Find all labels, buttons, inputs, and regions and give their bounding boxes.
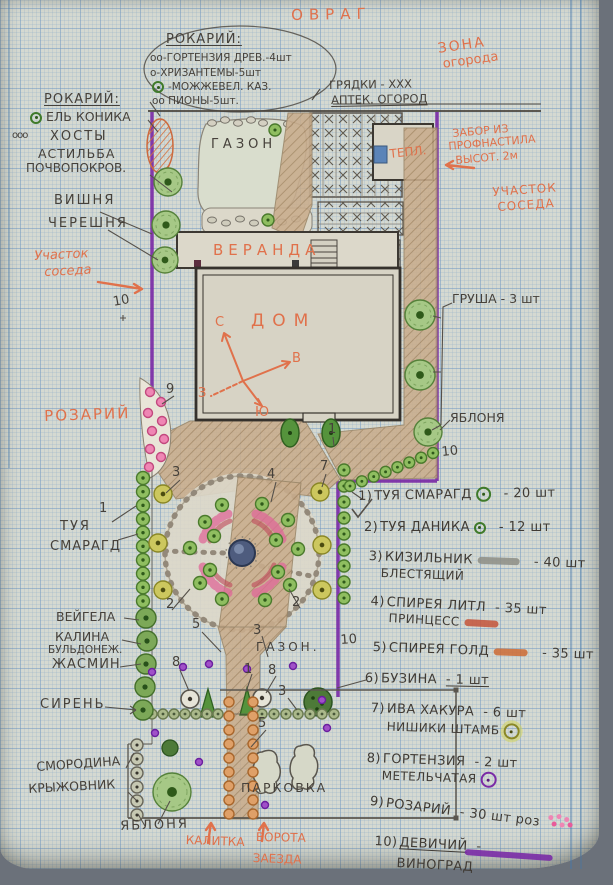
- legend-row-vine-2: ВИНОГРАД: [396, 856, 473, 875]
- num-hydrangea-8b: 8: [268, 664, 276, 678]
- legend-row-willow-2: НИШИКИ ШТАМБ: [386, 719, 523, 740]
- num-spirea-5a: 5: [192, 618, 200, 632]
- rockery-left-title: РОКАРИЙ:: [44, 93, 120, 107]
- label-pear: ГРУША - 3 шт: [452, 292, 540, 305]
- hydrangea-symbol-icon: [480, 771, 497, 788]
- num-spirea-4: 4: [267, 468, 275, 482]
- num-entrance-1: 1: [328, 423, 336, 437]
- rockery-item-peony: оо ПИОНЫ-5шт.: [152, 96, 239, 107]
- thuja-danica-symbol-icon: [474, 522, 486, 534]
- num-hedge-3a: 3: [172, 466, 180, 480]
- label-weigela: ВЕЙГЕЛА: [56, 610, 115, 623]
- spirea-lp-symbol-icon: [464, 619, 498, 628]
- screenshot: ОВРАГ ЗОНА огорода ЗАБОР ИЗ ПРОФНАСТИЛА …: [0, 0, 613, 885]
- willow-symbol-icon: [503, 723, 520, 740]
- label-kalina: КАЛИНА: [55, 630, 109, 643]
- legend-row-spirea-gold: 5)СПИРЕЯ ГОЛД- 35 шт: [372, 640, 594, 663]
- hosta-symbol: ооо: [12, 131, 27, 142]
- label-kalina-2: БУЛЬДОНЕЖ.: [48, 645, 122, 656]
- label-jasmine: ЖАСМИН: [52, 658, 121, 672]
- label-neighbor-left-1: Участок: [34, 247, 89, 263]
- label-thuja-left-2: СМАРАГД: [50, 540, 121, 554]
- label-house: ДОМ: [251, 313, 316, 331]
- label-astilba: АСТИЛЬБА: [38, 147, 115, 160]
- compass-north: С: [215, 316, 224, 330]
- label-greenhouse: ТЕПЛ.: [389, 144, 427, 160]
- label-hostas: ХОСТЫ: [50, 130, 108, 144]
- thuja-smaragd-symbol-icon: [476, 487, 491, 502]
- label-entry: ЗАЕЗДА: [253, 852, 302, 866]
- legend-row-rosary: 9)РОЗАРИЙ- 30 шт роз: [369, 793, 575, 834]
- label-currant: СМОРОДИНА: [36, 754, 121, 773]
- num-gate-1: 1: [244, 663, 252, 677]
- label-neighbor-right-2: СОСЕДА: [497, 197, 555, 214]
- label-lawn-bottom: ГАЗОН.: [256, 641, 320, 654]
- legend-row-thuja-smaragd: 1)ТУЯ СМАРАГД- 20 шт: [358, 486, 556, 504]
- legend-row-thuja-danica: 2)ТУЯ ДАНИКА- 12 шт: [364, 520, 551, 535]
- label-sweet-cherry: ЧЕРЕШНЯ: [48, 217, 128, 231]
- label-apple-right: ЯБЛОНЯ: [450, 411, 505, 424]
- roses-symbol-icon: [547, 815, 574, 830]
- label-spruce: ЕЛЬ КОНИКА: [26, 110, 131, 124]
- spruce-symbol-icon: [30, 112, 42, 124]
- dim-mid-10: 10: [340, 633, 357, 648]
- num-spirea-5b: 5: [258, 717, 266, 731]
- label-ravine: ОВРАГ: [291, 7, 372, 24]
- juniper-symbol-icon: [152, 81, 164, 93]
- legend-row-hydrangea-2: МЕТЕЛЬЧАТАЯ: [381, 768, 500, 788]
- rockery-item-juniper: -МОЖЖЕВЕЛ. КАЗ.: [148, 81, 271, 93]
- rockery-item-hydrangea: оо-ГОРТЕНЗИЯ ДРЕВ.-4шт: [150, 53, 292, 64]
- num-thuja-1: 1: [99, 502, 107, 516]
- label-gooseberry: КРЫЖОВНИК: [28, 777, 116, 795]
- num-hedge-3b: 3: [253, 624, 261, 638]
- label-apothecary-garden: АПТЕК. ОГОРОД: [331, 92, 428, 106]
- label-cherry: ВИШНЯ: [54, 194, 115, 208]
- num-rosary-9: 9: [166, 383, 174, 397]
- cotoneaster-symbol-icon: [478, 557, 520, 565]
- label-rosary: РОЗАРИЙ: [44, 406, 131, 425]
- rockery-item-chrysanthemum: о-ХРИЗАНТЕМЫ-5шт: [150, 68, 261, 79]
- compass-south: Ю: [255, 406, 269, 420]
- label-thuja-left-1: ТУЯ: [60, 520, 91, 534]
- compass-west: З: [198, 387, 206, 401]
- label-apple-bottom: ЯБЛОНЯ: [120, 818, 189, 834]
- num-willow-7: 7: [320, 460, 328, 474]
- label-gate: КАЛИТКА: [186, 834, 245, 849]
- dim-left-10: 10: [112, 293, 131, 309]
- label-lilac: СИРЕНЬ: [40, 698, 106, 712]
- num-circle-2a: 2: [166, 598, 174, 612]
- legend-row-elder: 6)БУЗИНА- 1 шт: [365, 671, 489, 688]
- num-circle-2b: 2: [292, 596, 300, 610]
- label-gates: ВОРОТА: [256, 831, 306, 844]
- label-neighbor-left-2: соседа: [44, 264, 92, 280]
- num-hedge-3c: 3: [278, 685, 286, 699]
- legend-row-cotoneaster-2: БЛЕСТЯЩИЙ: [381, 566, 465, 583]
- label-veranda: ВЕРАНДА: [213, 243, 320, 259]
- vine-symbol-icon: [465, 849, 553, 861]
- spirea-gold-symbol-icon: [494, 648, 528, 656]
- dim-right-10: 10: [441, 444, 459, 459]
- compass-east: В: [292, 352, 301, 366]
- label-lawn-top: ГАЗОН: [211, 138, 276, 152]
- label-groundcover: ПОЧВОПОКРОВ.: [26, 162, 126, 175]
- rockery-list-title: РОКАРИЙ:: [166, 33, 242, 47]
- num-hydrangea-8a: 8: [172, 656, 180, 670]
- label-parking: ПАРКОВКА: [241, 781, 327, 794]
- label-fence-note-3: ВЫСОТ. 2м: [455, 150, 518, 167]
- label-beds: ГРЯДКИ - ХХХ: [329, 78, 412, 92]
- labels-layer: ОВРАГ ЗОНА огорода ЗАБОР ИЗ ПРОФНАСТИЛА …: [0, 0, 613, 885]
